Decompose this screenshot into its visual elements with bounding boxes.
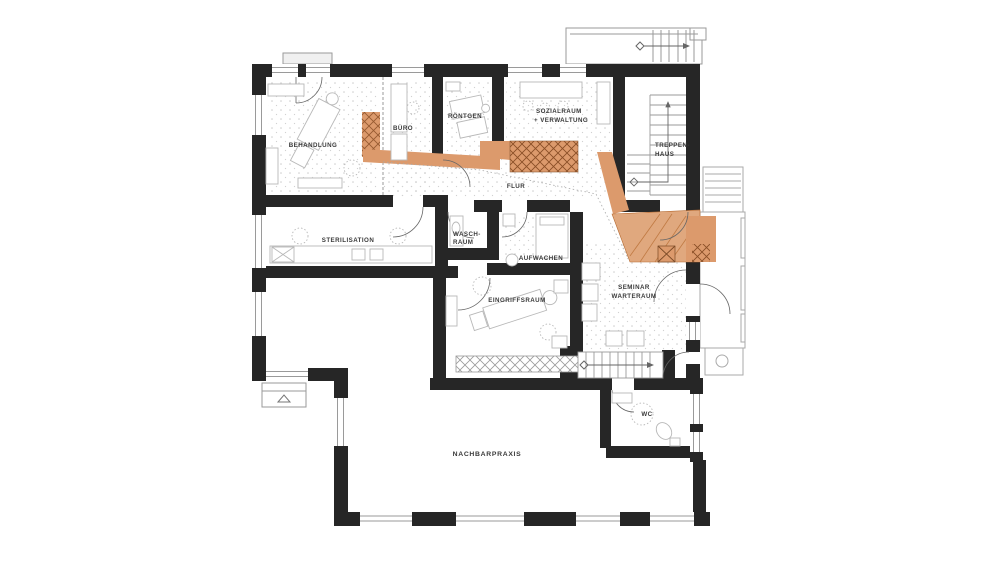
canopy-top-left	[283, 53, 332, 64]
staircase-exit-bottom	[578, 352, 663, 378]
label-nachbarpraxis: NACHBARPRAXIS	[453, 451, 522, 458]
label-behandlung: BEHANDLUNG	[289, 142, 338, 149]
label-treppenhaus-1: TREPPEN-	[655, 142, 690, 149]
label-seminar-2: WARTERAUM	[612, 293, 657, 300]
label-treppenhaus-2: HAUS	[655, 151, 674, 158]
label-sozialraum-2: + VERWALTUNG	[534, 117, 588, 124]
label-wc: WC	[641, 411, 652, 418]
entry-porch-right	[700, 167, 745, 375]
balcony-bottom-left	[262, 383, 306, 407]
label-flur: FLUR	[507, 183, 525, 190]
label-seminar-1: SEMINAR	[618, 284, 650, 291]
operating-table	[468, 285, 559, 333]
label-buero: BÜRO	[393, 125, 413, 132]
label-roentgen: RÖNTGEN	[448, 113, 482, 120]
glazed-screen-strip	[456, 356, 587, 372]
label-waschraum-1: WASCH-	[453, 231, 481, 238]
floor-plan-canvas: BEHANDLUNG BÜRO RÖNTGEN SOZIALRAUM + VER…	[0, 0, 1000, 562]
exterior-stair-top	[566, 28, 706, 64]
label-sozialraum-1: SOZIALRAUM	[536, 108, 582, 115]
label-waschraum-2: RAUM	[453, 239, 473, 246]
label-aufwachen: AUFWACHEN	[519, 255, 563, 262]
label-sterilisation: STERILISATION	[322, 237, 375, 244]
floor-plan: BEHANDLUNG BÜRO RÖNTGEN SOZIALRAUM + VER…	[0, 0, 1000, 562]
label-eingriffsraum: EINGRIFFSRAUM	[488, 297, 545, 304]
